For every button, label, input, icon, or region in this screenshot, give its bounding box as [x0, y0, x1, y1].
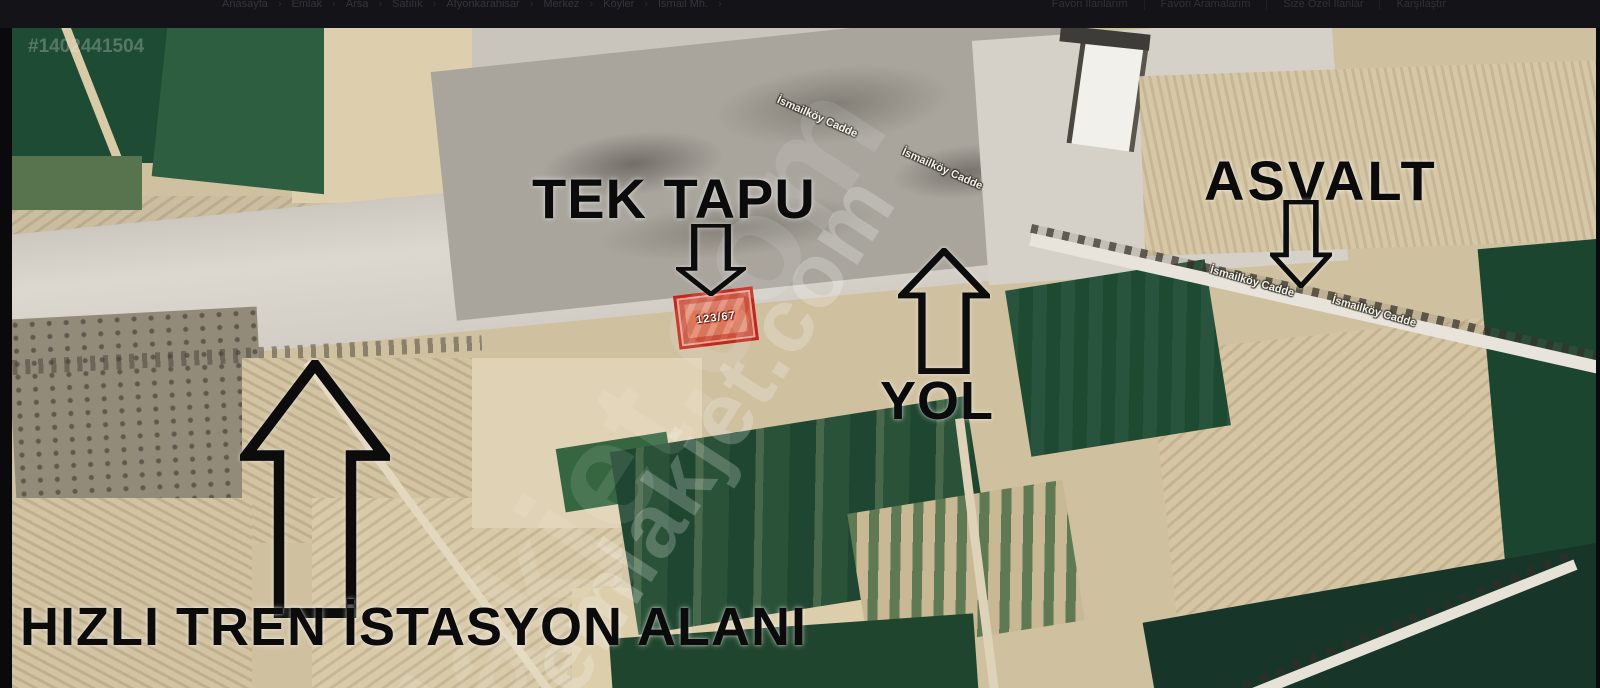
site-header: Anasayfa› Emlak› Arsa› Satılık› Afyonkar… [0, 0, 1600, 28]
green-field [152, 28, 324, 195]
green-field [12, 156, 142, 210]
yol-label: YOL [880, 370, 994, 432]
tek-tapu-label: TEK TAPU [532, 166, 816, 231]
header-links: Favori İlanlarım Favori Aramalarım Size … [1036, 0, 1462, 10]
special-listings-link[interactable]: Size Özel İlanlar [1266, 0, 1379, 10]
breadcrumb-separator: › [530, 0, 534, 10]
compare-link[interactable]: Karşılaştır [1379, 0, 1462, 10]
breadcrumb-item-city[interactable]: Afyonkarahisar [446, 0, 519, 10]
breadcrumb-separator: › [644, 0, 648, 10]
breadcrumb-separator: › [332, 0, 336, 10]
breadcrumb-item-koyler[interactable]: Köyler [603, 0, 634, 10]
satellite-map-image: #1402441504 emlakjet.com emlakjet.com İs… [12, 28, 1596, 688]
breadcrumb-item-arsa[interactable]: Arsa [346, 0, 369, 10]
breadcrumb-item-satilik[interactable]: Satılık [392, 0, 423, 10]
parcel-number: 123/67 [693, 309, 740, 326]
tek-tapu-arrow-icon [676, 224, 746, 296]
breadcrumb-separator: › [378, 0, 382, 10]
yol-arrow-icon [898, 248, 990, 374]
scrub-area [12, 307, 267, 520]
field-patch [12, 498, 252, 688]
page: { "topbar": { "breadcrumb": ["Anasayfa",… [0, 0, 1600, 688]
breadcrumb-separator: › [589, 0, 593, 10]
hizli-tren-label: HIZLI TREN İSTASYON ALANI [20, 596, 807, 658]
breadcrumb-item-home[interactable]: Anasayfa [222, 0, 268, 10]
breadcrumb-item-emlak[interactable]: Emlak [292, 0, 323, 10]
breadcrumb-item-mahalle[interactable]: İsmail Mh. [658, 0, 708, 10]
green-field [1005, 259, 1231, 457]
hizli-tren-arrow-icon [240, 360, 390, 618]
breadcrumb-separator: › [433, 0, 437, 10]
breadcrumb-separator: › [278, 0, 282, 10]
favorite-listings-link[interactable]: Favori İlanlarım [1036, 0, 1144, 10]
breadcrumb: Anasayfa› Emlak› Arsa› Satılık› Afyonkar… [222, 0, 722, 10]
breadcrumb-item-district[interactable]: Merkez [543, 0, 579, 10]
favorite-searches-link[interactable]: Favori Aramalarım [1144, 0, 1267, 10]
asvalt-arrow-icon [1270, 200, 1332, 288]
photo-id-watermark: #1402441504 [28, 36, 144, 58]
breadcrumb-separator: › [718, 0, 722, 10]
